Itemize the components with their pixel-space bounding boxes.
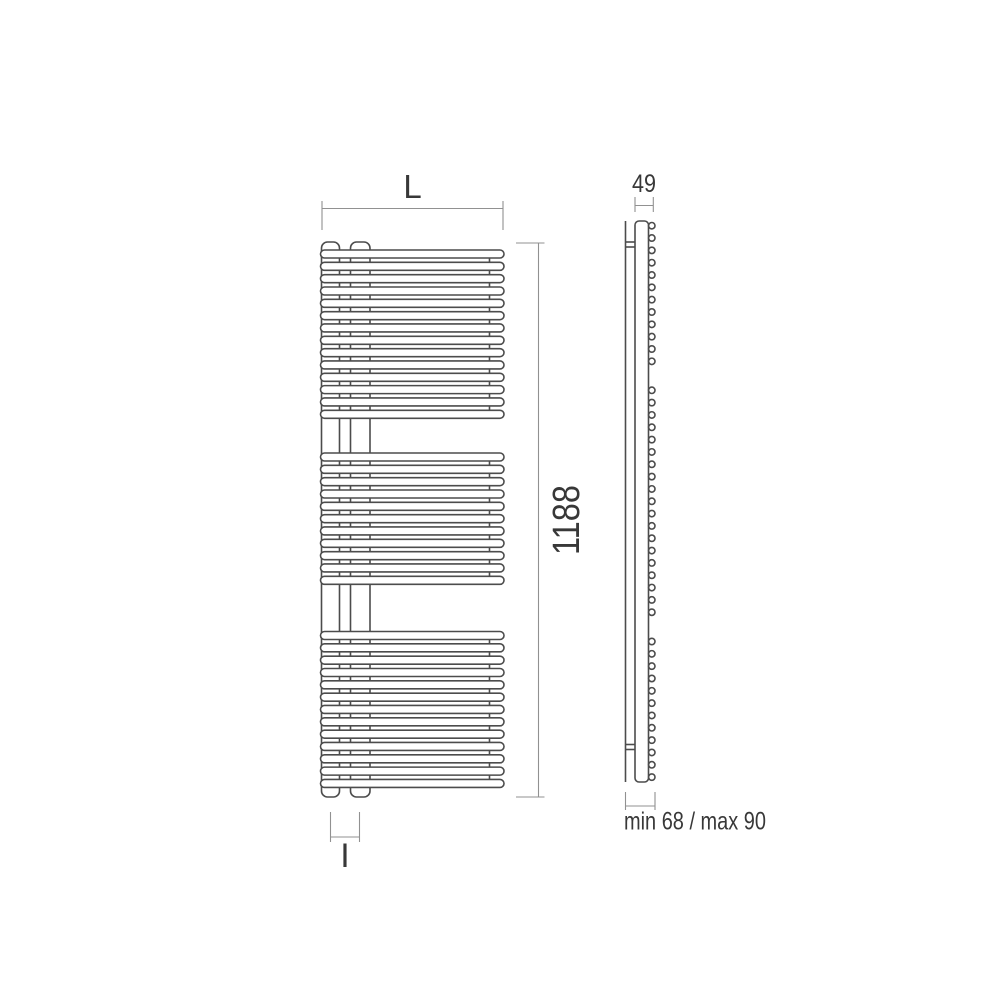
tube bbox=[321, 632, 505, 640]
tube-end-circle bbox=[649, 712, 655, 718]
tube bbox=[321, 656, 505, 664]
tube bbox=[321, 262, 505, 270]
tube-end-circle bbox=[649, 387, 655, 393]
dim-depth-label: 49 bbox=[632, 170, 656, 198]
tube bbox=[321, 324, 505, 332]
tube-end-circle bbox=[649, 584, 655, 590]
tube bbox=[321, 373, 505, 381]
tube-end-circle bbox=[649, 638, 655, 644]
tube bbox=[321, 705, 505, 713]
tube-end-circle bbox=[649, 473, 655, 479]
tube-end-circle bbox=[649, 547, 655, 553]
tube bbox=[321, 681, 505, 689]
radiator-technical-drawing: L 1188 I bbox=[0, 0, 1000, 1000]
tube bbox=[321, 552, 505, 560]
dim-height-label: 1188 bbox=[546, 485, 588, 555]
front-view: L 1188 I bbox=[321, 168, 589, 875]
tube-end-circle bbox=[649, 235, 655, 241]
tube bbox=[321, 718, 505, 726]
tube bbox=[321, 453, 505, 461]
tube bbox=[321, 502, 505, 510]
tube bbox=[321, 299, 505, 307]
tube-end-circle bbox=[649, 358, 655, 364]
dim-width-label: L bbox=[403, 168, 421, 205]
dim-connection-label: I bbox=[340, 837, 349, 875]
tube bbox=[321, 564, 505, 572]
tube-end-circle bbox=[649, 609, 655, 615]
tube-end-circle bbox=[649, 449, 655, 455]
tube bbox=[321, 779, 505, 787]
tube bbox=[321, 490, 505, 498]
tube-group bbox=[321, 453, 505, 584]
tube-end-circle bbox=[649, 688, 655, 694]
tube-end-circle bbox=[649, 309, 655, 315]
tube-end-circle bbox=[649, 663, 655, 669]
collector-pipe-profile bbox=[635, 221, 649, 782]
tube bbox=[321, 730, 505, 738]
tube-end-circle bbox=[649, 560, 655, 566]
tube bbox=[321, 386, 505, 394]
dim-width: L bbox=[322, 168, 503, 230]
tube bbox=[321, 275, 505, 283]
dim-connection: I bbox=[331, 812, 360, 875]
tube-end-circle bbox=[649, 284, 655, 290]
tube-end-circle-group bbox=[649, 638, 655, 780]
tube-end-circle bbox=[649, 535, 655, 541]
tube-end-circle bbox=[649, 597, 655, 603]
tube bbox=[321, 465, 505, 473]
tube-end-circle bbox=[649, 725, 655, 731]
tube-end-circle bbox=[649, 436, 655, 442]
tube-end-circle bbox=[649, 675, 655, 681]
bracket-top bbox=[626, 242, 636, 247]
dim-wall-distance: min 68 / max 90 bbox=[624, 792, 766, 836]
tube-end-circle bbox=[649, 346, 655, 352]
tube-end-circle bbox=[649, 737, 655, 743]
tube-end-circle bbox=[649, 510, 655, 516]
tube-end-circle bbox=[649, 572, 655, 578]
tube-end-circle bbox=[649, 272, 655, 278]
tube-end-circle-group bbox=[649, 387, 655, 615]
tube-end-circle bbox=[649, 749, 655, 755]
tube bbox=[321, 644, 505, 652]
tube bbox=[321, 527, 505, 535]
tube-end-circle bbox=[649, 774, 655, 780]
side-view: 49 min 68 / max 90 bbox=[624, 170, 766, 836]
tube bbox=[321, 349, 505, 357]
tube bbox=[321, 361, 505, 369]
tube bbox=[321, 478, 505, 486]
tube bbox=[321, 312, 505, 320]
tube-end-circle bbox=[649, 333, 655, 339]
tube bbox=[321, 250, 505, 258]
tube-end-circle bbox=[649, 651, 655, 657]
tube-end-circle bbox=[649, 762, 655, 768]
tube-end-circle bbox=[649, 223, 655, 229]
tube-end-circle bbox=[649, 523, 655, 529]
bracket-bottom bbox=[626, 745, 636, 750]
tube bbox=[321, 410, 505, 418]
tube bbox=[321, 576, 505, 584]
tube-end-circle bbox=[649, 700, 655, 706]
tube-end-circle bbox=[649, 321, 655, 327]
tube-end-circle bbox=[649, 259, 655, 265]
tube-end-circle bbox=[649, 498, 655, 504]
tube bbox=[321, 668, 505, 676]
tube bbox=[321, 398, 505, 406]
dim-wall-label: min 68 / max 90 bbox=[624, 808, 766, 836]
tube-group bbox=[321, 250, 505, 418]
tube bbox=[321, 742, 505, 750]
tube bbox=[321, 767, 505, 775]
tube-end-circle bbox=[649, 424, 655, 430]
tube-end-circles bbox=[649, 223, 655, 781]
tube-end-circle-group bbox=[649, 223, 655, 365]
tube-end-circle bbox=[649, 412, 655, 418]
tube-end-circle bbox=[649, 247, 655, 253]
tube bbox=[321, 539, 505, 547]
tube-group bbox=[321, 632, 505, 788]
tube-end-circle bbox=[649, 399, 655, 405]
tube-groups bbox=[321, 250, 505, 787]
tube-end-circle bbox=[649, 486, 655, 492]
dim-depth: 49 bbox=[632, 170, 656, 212]
tube-end-circle bbox=[649, 296, 655, 302]
tube bbox=[321, 287, 505, 295]
dim-height: 1188 bbox=[516, 243, 588, 797]
tube bbox=[321, 515, 505, 523]
tube bbox=[321, 755, 505, 763]
tube bbox=[321, 336, 505, 344]
tube-end-circle bbox=[649, 461, 655, 467]
tube bbox=[321, 693, 505, 701]
